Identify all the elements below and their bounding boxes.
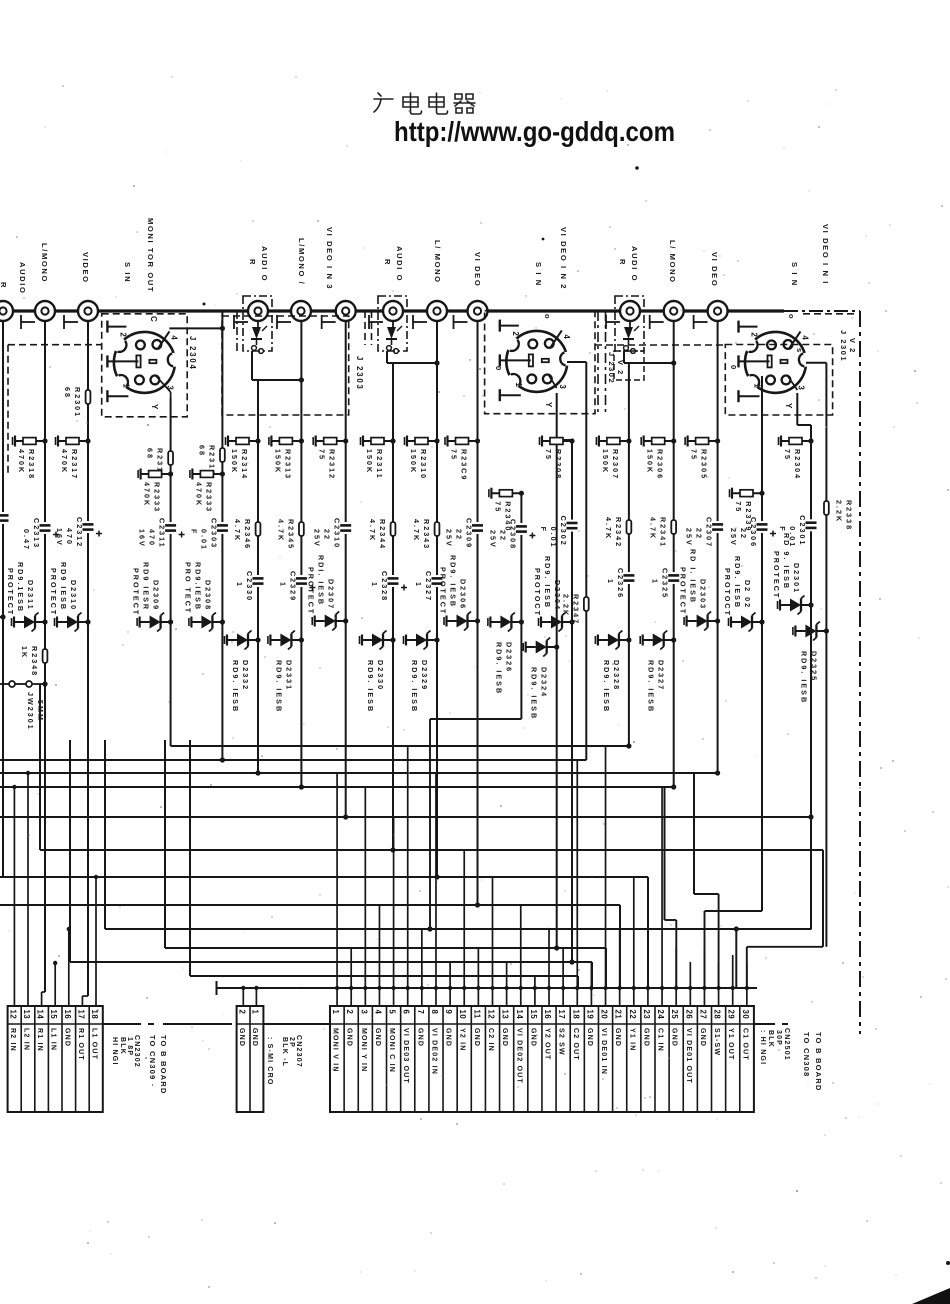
svg-text:12: 12 <box>486 1010 495 1020</box>
svg-text:VI DEO: VI DEO <box>710 252 719 287</box>
svg-text:GND: GND <box>501 1028 508 1047</box>
svg-text:150K: 150K <box>409 449 418 474</box>
svg-text:RD9.1ESB: RD9.1ESB <box>16 562 25 613</box>
svg-text:Y: Y <box>150 404 159 411</box>
svg-text:0.01: 0.01 <box>199 529 208 551</box>
svg-text:C2311: C2311 <box>158 518 167 549</box>
svg-text:25: 25 <box>670 1010 679 1020</box>
svg-text:RD9 IESB: RD9 IESB <box>59 562 68 611</box>
svg-text:75: 75 <box>690 449 699 461</box>
svg-text:15: 15 <box>49 1010 58 1020</box>
svg-text:12: 12 <box>8 1010 17 1020</box>
svg-text:GND: GND <box>529 1028 536 1047</box>
svg-text:VI DE02 OUT: VI DE02 OUT <box>515 1028 522 1084</box>
svg-text:C1 IN: C1 IN <box>657 1028 664 1052</box>
svg-text:16: 16 <box>63 1010 72 1020</box>
svg-text:MONI C IN: MONI C IN <box>388 1028 395 1073</box>
svg-text:4: 4 <box>801 335 810 340</box>
svg-text:R2307: R2307 <box>611 449 620 480</box>
svg-text:MONI Y IN: MONI Y IN <box>360 1028 367 1072</box>
svg-text:R2310: R2310 <box>419 449 428 480</box>
svg-text:RD 9. IESB: RD 9. IESB <box>782 533 791 590</box>
svg-text:R: R <box>248 259 257 266</box>
svg-text:4: 4 <box>169 335 178 340</box>
svg-text:D2307: D2307 <box>327 579 336 610</box>
svg-text:150K: 150K <box>601 449 610 474</box>
svg-text:25V: 25V <box>313 529 322 548</box>
svg-text:150K: 150K <box>273 449 282 474</box>
svg-text:R2333: R2333 <box>204 482 213 513</box>
svg-text:R: R <box>383 259 392 266</box>
svg-text:GND: GND <box>699 1028 706 1047</box>
svg-text:75: 75 <box>734 501 743 513</box>
svg-text:D2306: D2306 <box>459 579 468 610</box>
svg-text:JW2301: JW2301 <box>26 692 35 731</box>
svg-text:MONI V IN: MONI V IN <box>332 1028 339 1073</box>
svg-text:R2348: R2348 <box>30 646 39 677</box>
svg-text:4.7K: 4.7K <box>412 519 421 542</box>
svg-text:RDI. IESB: RDI. IESB <box>317 555 326 606</box>
svg-text:470: 470 <box>148 529 157 547</box>
svg-text:C2301: C2301 <box>798 515 807 546</box>
svg-text:3: 3 <box>558 384 567 389</box>
svg-text:o: o <box>543 314 552 321</box>
svg-text:L/MONO: L/MONO <box>40 243 49 283</box>
svg-text:D2324: D2324 <box>540 667 549 698</box>
svg-text:68: 68 <box>197 445 206 457</box>
svg-text:4: 4 <box>373 1010 382 1015</box>
svg-text:V 2: V 2 <box>848 338 857 354</box>
svg-text:470: 470 <box>65 528 74 546</box>
svg-text:AUDI O: AUDI O <box>260 246 269 282</box>
svg-text:: HI NGI: : HI NGI <box>759 1030 766 1065</box>
svg-text:Y: Y <box>544 402 553 409</box>
svg-text:22: 22 <box>628 1010 637 1020</box>
svg-text:VI DEO I N 3: VI DEO I N 3 <box>325 227 334 290</box>
svg-text:D2303: D2303 <box>699 579 708 610</box>
svg-text:S2 SW: S2 SW <box>558 1028 565 1056</box>
svg-text:2: 2 <box>237 1010 246 1015</box>
svg-text:R2318: R2318 <box>27 449 36 480</box>
svg-text:22: 22 <box>455 529 464 541</box>
svg-text:C2325: C2325 <box>661 568 670 599</box>
svg-text:0: 0 <box>729 365 738 371</box>
svg-text:R2308: R2308 <box>554 449 563 480</box>
svg-text:RD9. IESB: RD9. IESB <box>543 556 552 609</box>
svg-text:VI DEO I N 2: VI DEO I N 2 <box>559 227 568 290</box>
svg-text:C2306: C2306 <box>749 517 758 548</box>
svg-text:GND: GND <box>346 1028 353 1047</box>
svg-text:VI DE01 IN: VI DE01 IN <box>600 1028 607 1075</box>
svg-text:GND: GND <box>416 1028 423 1047</box>
svg-text:PROTECT: PROTECT <box>679 567 688 615</box>
svg-text:C2329: C2329 <box>288 571 297 602</box>
svg-text:1: 1 <box>606 579 615 585</box>
svg-text:26: 26 <box>684 1010 693 1020</box>
svg-text:RD9. IESB: RD9. IESB <box>799 651 808 704</box>
svg-text:27: 27 <box>698 1010 707 1020</box>
svg-text:CN2307: CN2307 <box>295 1035 302 1068</box>
svg-text:Y2 OUT: Y2 OUT <box>544 1028 551 1060</box>
svg-text:30P: 30P <box>775 1030 782 1046</box>
svg-text:D2311: D2311 <box>26 580 35 611</box>
svg-text:VI DEO I N I: VI DEO I N I <box>821 224 830 285</box>
svg-text:C: C <box>149 316 158 324</box>
svg-text:RD9. IESB: RD9. IESB <box>733 556 742 609</box>
svg-text:Y2 IN: Y2 IN <box>459 1028 466 1052</box>
svg-text:o: o <box>787 314 796 321</box>
svg-text:VI DE01 OUT: VI DE01 OUT <box>685 1028 692 1084</box>
svg-text:470K: 470K <box>143 482 152 507</box>
svg-text:PROTECT: PROTECT <box>439 567 448 615</box>
svg-text:C2328: C2328 <box>380 571 389 602</box>
svg-text:R2 IN: R2 IN <box>9 1028 16 1052</box>
svg-text:RD9. IESB: RD9. IESB <box>231 660 240 713</box>
svg-text:D2310: D2310 <box>69 580 78 611</box>
svg-text:C2302: C2302 <box>559 516 568 547</box>
svg-text:D2331: D2331 <box>284 660 293 691</box>
svg-text:R2313: R2313 <box>283 449 292 480</box>
svg-text:PRO TECT: PRO TECT <box>183 562 192 614</box>
svg-text:D2329: D2329 <box>420 660 429 691</box>
svg-text:R2338: R2338 <box>844 500 853 531</box>
svg-text:RD9. IESB: RD9. IESB <box>410 660 419 713</box>
svg-text:RD I. IESB: RD I. IESB <box>689 549 698 604</box>
svg-text:4: 4 <box>562 334 571 339</box>
svg-text:1: 1 <box>370 582 379 588</box>
svg-text:C2312: C2312 <box>75 517 84 548</box>
svg-text:TO B BOARD: TO B BOARD <box>159 1035 168 1095</box>
svg-text:AUDI O: AUDI O <box>395 246 404 282</box>
svg-text:150K: 150K <box>230 449 239 474</box>
svg-text:GND: GND <box>586 1028 593 1047</box>
svg-text:: S-MI CRO: : S-MI CRO <box>266 1037 273 1086</box>
svg-text:J 2303: J 2303 <box>355 356 364 391</box>
svg-text:R2346: R2346 <box>243 519 252 550</box>
svg-text:R1 IN: R1 IN <box>36 1028 43 1052</box>
svg-text:16V: 16V <box>55 528 64 547</box>
svg-text:68: 68 <box>146 448 155 460</box>
svg-text:4.7K: 4.7K <box>233 519 242 542</box>
svg-text:19: 19 <box>585 1010 594 1020</box>
svg-text:29: 29 <box>727 1010 736 1020</box>
svg-text:R2311: R2311 <box>375 449 384 480</box>
svg-text:75: 75 <box>783 449 792 461</box>
svg-text:22: 22 <box>323 529 332 541</box>
svg-text:PROTECT: PROTECT <box>132 568 141 616</box>
svg-text:150K: 150K <box>646 449 655 474</box>
svg-text:PROTOCT: PROTOCT <box>723 568 732 617</box>
svg-text:PROTECT: PROTECT <box>49 568 58 616</box>
svg-text:16V: 16V <box>138 529 147 548</box>
svg-text:TO CN308: TO CN308 <box>802 1032 811 1078</box>
svg-text:24: 24 <box>656 1010 665 1020</box>
svg-text:C2327: C2327 <box>424 571 433 602</box>
svg-text:2.2K: 2.2K <box>834 500 843 523</box>
svg-text:PROTECT: PROTECT <box>6 568 15 616</box>
svg-text:TO CN309 ·: TO CN309 · <box>148 1035 157 1088</box>
svg-text:C1 OUT: C1 OUT <box>741 1028 748 1061</box>
svg-text:0.01: 0.01 <box>549 527 558 549</box>
svg-text:R2342: R2342 <box>614 517 623 548</box>
svg-text:25V: 25V <box>729 528 738 547</box>
svg-text:GND: GND <box>642 1028 649 1047</box>
svg-text:R: R <box>0 282 8 289</box>
svg-text:2: 2 <box>118 332 127 337</box>
svg-text:R2317: R2317 <box>70 449 79 480</box>
svg-text:Y1 OUT: Y1 OUT <box>727 1028 734 1060</box>
svg-text:0: 0 <box>494 366 503 372</box>
svg-text:PROTOCT: PROTOCT <box>533 568 542 617</box>
svg-text:GND: GND <box>63 1028 70 1047</box>
svg-text:75: 75 <box>318 449 327 461</box>
svg-text:1K: 1K <box>20 646 29 659</box>
svg-text:RD9. IESB: RD9. IESB <box>274 660 283 713</box>
svg-text:R23C9: R23C9 <box>460 449 469 481</box>
svg-text:8: 8 <box>430 1010 439 1015</box>
svg-text:L1 OUT: L1 OUT <box>91 1028 98 1060</box>
svg-text:16: 16 <box>543 1010 552 1020</box>
svg-text:25V: 25V <box>685 528 694 547</box>
svg-text:S IN: S IN <box>123 262 132 283</box>
svg-text:BLK: BLK <box>767 1030 774 1048</box>
svg-text:R2306: R2306 <box>656 449 665 480</box>
svg-text:L/ MONO: L/ MONO <box>433 240 442 284</box>
svg-text:75: 75 <box>450 449 459 461</box>
svg-text:GND: GND <box>374 1028 381 1047</box>
svg-text:R2343: R2343 <box>422 519 431 550</box>
svg-text:R: R <box>618 259 627 266</box>
svg-text:14: 14 <box>515 1010 524 1020</box>
svg-text:GND: GND <box>445 1028 452 1047</box>
svg-text:28: 28 <box>713 1010 722 1020</box>
svg-text:VI DEO: VI DEO <box>473 252 482 287</box>
svg-text:C2 OUT: C2 OUT <box>572 1028 579 1061</box>
svg-text:1 8P: 1 8P <box>126 1037 133 1056</box>
svg-text:10: 10 <box>458 1010 467 1020</box>
svg-text:22: 22 <box>695 528 704 540</box>
svg-text:1: 1 <box>331 1010 340 1015</box>
svg-text:R2344: R2344 <box>378 519 387 550</box>
svg-text:AUDI O: AUDI O <box>630 246 639 282</box>
svg-text:23: 23 <box>642 1010 651 1020</box>
svg-text:470K: 470K <box>60 449 69 474</box>
svg-text:25V: 25V <box>445 529 454 548</box>
svg-text:C2330: C2330 <box>245 571 254 602</box>
svg-text:18: 18 <box>571 1010 580 1020</box>
svg-text:CN2501: CN2501 <box>783 1028 790 1061</box>
svg-text:D2304: D2304 <box>553 580 562 611</box>
svg-text:GND: GND <box>238 1028 245 1047</box>
svg-text:150K: 150K <box>365 449 374 474</box>
svg-text:4.7K: 4.7K <box>368 519 377 542</box>
svg-text:13: 13 <box>501 1010 510 1020</box>
svg-text:D2301: D2301 <box>792 563 801 594</box>
svg-text:s: s <box>795 348 804 354</box>
svg-text:30: 30 <box>741 1010 750 1020</box>
svg-text:Y: Y <box>784 403 793 410</box>
svg-text:RD9. IESB: RD9. IESB <box>366 660 375 713</box>
svg-text:75: 75 <box>544 449 553 461</box>
svg-text:VIDEO: VIDEO <box>81 252 90 284</box>
svg-text:GND: GND <box>251 1028 258 1047</box>
svg-text:PROTECT: PROTECT <box>772 551 781 599</box>
svg-text:68: 68 <box>63 387 72 399</box>
svg-text:D2308: D2308 <box>203 580 212 611</box>
svg-text:L2 IN: L2 IN <box>23 1028 30 1051</box>
svg-text:RD9. IESB: RD9. IESB <box>530 667 539 720</box>
svg-text:J 2301: J 2301 <box>839 330 848 362</box>
svg-text:PROTECT: PROTECT <box>307 567 316 615</box>
svg-text:D2 02: D2 02 <box>743 580 752 609</box>
svg-text:1: 1 <box>278 582 287 588</box>
svg-text:VI DE03 OUT: VI DE03 OUT <box>402 1028 409 1084</box>
svg-text:TO B BOARD: TO B BOARD <box>814 1032 823 1092</box>
svg-text:0.47: 0.47 <box>22 529 31 551</box>
svg-text:R2341: R2341 <box>659 517 668 548</box>
svg-text:1: 1 <box>651 579 660 585</box>
svg-text:4.7K: 4.7K <box>604 517 613 540</box>
svg-text:VI DE02 IN: VI DE02 IN <box>430 1028 437 1075</box>
svg-text:CN2302: CN2302 <box>133 1035 140 1068</box>
svg-text:C2307: C2307 <box>705 517 714 548</box>
svg-text:7: 7 <box>416 1010 425 1015</box>
svg-text:S I N: S I N <box>534 262 543 287</box>
svg-text:R2345: R2345 <box>286 519 295 550</box>
svg-text:22: 22 <box>498 530 507 542</box>
svg-text:1: 1 <box>514 382 523 387</box>
svg-text:S1-SW: S1-SW <box>713 1028 720 1056</box>
svg-text:C2 IN: C2 IN <box>487 1028 494 1052</box>
svg-text:RD9. IESB: RD9. IESB <box>602 660 611 713</box>
svg-text:http://www.go-gddq.com: http://www.go-gddq.com <box>394 116 675 147</box>
svg-text:J 2304: J 2304 <box>188 336 197 371</box>
svg-text:AUDIO: AUDIO <box>18 262 27 294</box>
svg-text:1: 1 <box>235 582 244 588</box>
svg-text:HI NGI: HI NGI <box>111 1037 118 1066</box>
svg-text:GND: GND <box>671 1028 678 1047</box>
svg-text:3: 3 <box>797 385 806 390</box>
svg-text:C2309: C2309 <box>465 518 474 549</box>
svg-text:17: 17 <box>557 1010 566 1020</box>
svg-text:MONI TOR OUT: MONI TOR OUT <box>146 218 155 293</box>
svg-text:RD9 IESR: RD9 IESR <box>142 562 151 611</box>
svg-text:R2333: R2333 <box>153 482 162 513</box>
svg-text:2P: 2P <box>288 1037 295 1048</box>
svg-text:1: 1 <box>121 383 130 388</box>
svg-text:D2330: D2330 <box>376 660 385 691</box>
svg-text:C2308: C2308 <box>508 519 517 550</box>
svg-text:21: 21 <box>614 1010 623 1020</box>
svg-text:14: 14 <box>36 1010 45 1020</box>
svg-text:R2301: R2301 <box>73 387 82 418</box>
svg-text:2: 2 <box>750 332 759 337</box>
svg-text:13: 13 <box>22 1010 31 1020</box>
svg-text:11: 11 <box>472 1010 481 1019</box>
svg-text:BLK: BLK <box>119 1037 126 1055</box>
svg-text:1: 1 <box>414 582 423 588</box>
svg-text:D2309: D2309 <box>152 580 161 611</box>
svg-text:R2304: R2304 <box>793 449 802 480</box>
svg-text:4.7K: 4.7K <box>649 517 658 540</box>
svg-text:D2332: D2332 <box>241 660 250 691</box>
svg-text:F: F <box>539 527 548 533</box>
svg-text:25V: 25V <box>488 530 497 549</box>
svg-text:L1 IN: L1 IN <box>50 1028 57 1051</box>
svg-text:R2314: R2314 <box>240 449 249 480</box>
svg-text:D2327: D2327 <box>657 660 666 691</box>
svg-text:C2303: C2303 <box>209 518 218 549</box>
svg-text:4.7K: 4.7K <box>276 519 285 542</box>
svg-text:5: 5 <box>388 1010 397 1015</box>
svg-text:C2310: C2310 <box>333 518 342 549</box>
svg-text:D2326: D2326 <box>504 642 513 673</box>
svg-text:L/MONO /: L/MONO / <box>297 238 306 285</box>
svg-text:2: 2 <box>345 1010 354 1015</box>
svg-text:3: 3 <box>359 1010 368 1015</box>
svg-text:1: 1 <box>251 1010 260 1015</box>
svg-text:9: 9 <box>444 1010 453 1015</box>
svg-text:F: F <box>778 526 787 532</box>
svg-text:2: 2 <box>511 331 520 336</box>
svg-text:20: 20 <box>600 1010 609 1020</box>
svg-text:6: 6 <box>402 1010 411 1015</box>
svg-text:RD9. IESB: RD9. IESB <box>647 660 656 713</box>
svg-text:S I N: S I N <box>790 262 799 287</box>
svg-text:1: 1 <box>753 383 762 388</box>
svg-text:GND: GND <box>614 1028 621 1047</box>
svg-text:D2325: D2325 <box>809 651 818 682</box>
svg-text:17: 17 <box>76 1010 85 1020</box>
svg-text:RD9.IESB: RD9.IESB <box>193 562 202 611</box>
svg-text:GND: GND <box>473 1028 480 1047</box>
svg-text:R2305: R2305 <box>700 449 709 480</box>
svg-text:470K: 470K <box>194 482 203 507</box>
svg-text:R1 OUT: R1 OUT <box>77 1028 84 1061</box>
svg-text:R2312: R2312 <box>328 449 337 480</box>
svg-text:F: F <box>189 529 198 535</box>
svg-text:RD9. IESB: RD9. IESB <box>494 642 503 695</box>
svg-text:C2313: C2313 <box>32 518 41 549</box>
svg-text:22: 22 <box>739 528 748 540</box>
svg-text:RD9. IESB: RD9. IESB <box>449 555 458 608</box>
svg-text:75: 75 <box>493 501 502 513</box>
svg-text:L/ MONO: L/ MONO <box>668 240 677 284</box>
svg-text:Y1 IN: Y1 IN <box>628 1028 635 1052</box>
svg-text:15: 15 <box>529 1010 538 1020</box>
svg-text:BLK -L: BLK -L <box>281 1037 288 1067</box>
svg-text:470K: 470K <box>17 449 26 474</box>
svg-text:18: 18 <box>90 1010 99 1020</box>
svg-text:C2326: C2326 <box>616 568 625 599</box>
